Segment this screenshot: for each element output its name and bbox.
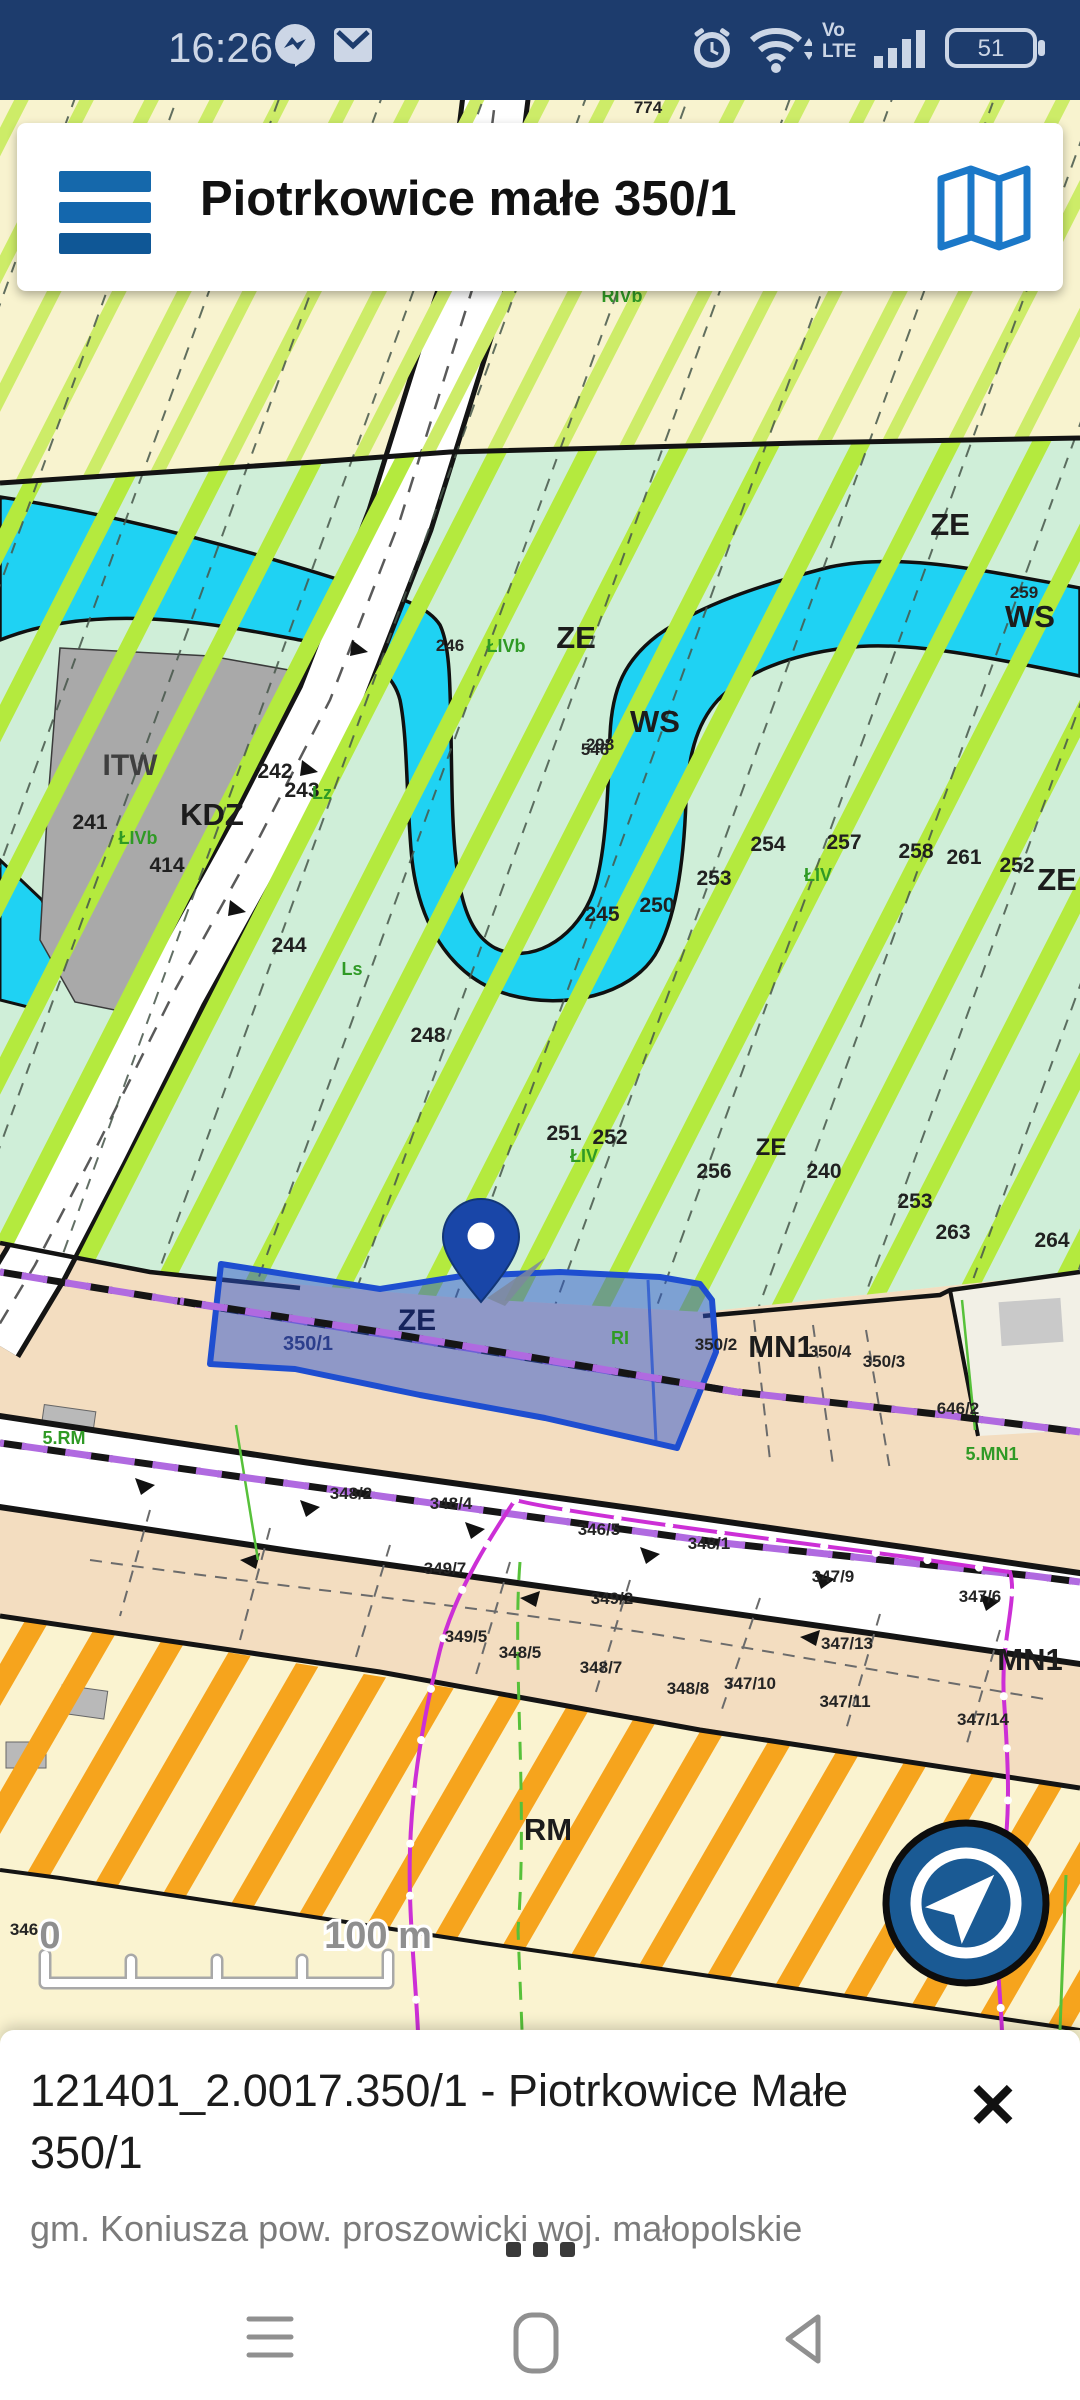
map-label: 347/9 — [812, 1567, 855, 1586]
map-label: ZE — [1037, 862, 1077, 897]
close-icon: ✕ — [967, 2072, 1019, 2141]
signal-icon — [872, 22, 934, 72]
recents-button[interactable] — [245, 2311, 295, 2367]
map-label: 264 — [1034, 1229, 1069, 1252]
map-label: RM — [524, 1812, 572, 1847]
map-label: ZE — [756, 1134, 787, 1161]
map-label: 251 — [546, 1122, 581, 1145]
map-label: 347/14 — [957, 1710, 1010, 1729]
map-label: Lz — [312, 783, 332, 803]
map-label: 244 — [271, 934, 306, 957]
search-title-card[interactable]: Piotrkowice małe 350/1 — [17, 123, 1063, 291]
clock: 16:26 — [168, 24, 273, 72]
wifi-icon — [748, 22, 812, 74]
phone-screen: 774ZEZEZEZEZEWSWSITWKDZMN1MN1RM259246298… — [0, 0, 1080, 2400]
map-label: 348/5 — [499, 1643, 542, 1662]
map-label: 774 — [634, 98, 663, 117]
map-label: ŁIVb — [119, 828, 158, 848]
map-label: MN1 — [748, 1329, 813, 1364]
map-label: 248 — [410, 1024, 445, 1047]
map-label: 259 — [1010, 583, 1038, 602]
map-label: 350/1 — [283, 1333, 333, 1355]
map-label: 347/13 — [821, 1634, 873, 1653]
map-label: WS — [1005, 599, 1055, 634]
map-label: ZE — [556, 620, 596, 655]
map-label: MN1 — [997, 1642, 1062, 1677]
map-label: 348/4 — [430, 1494, 473, 1513]
map-label: 241 — [72, 811, 107, 834]
location-pin-hole — [468, 1223, 495, 1250]
scale-zero-label: 0 — [39, 1915, 60, 1957]
gmail-icon — [330, 22, 376, 68]
ellipsis-icon — [506, 2242, 521, 2257]
map-label: 246 — [436, 636, 464, 655]
back-icon — [788, 2317, 818, 2361]
home-button[interactable] — [512, 2311, 560, 2375]
page-title: Piotrkowice małe 350/1 — [200, 171, 900, 227]
building — [999, 1298, 1064, 1346]
map-icon — [941, 169, 1027, 247]
map-label: 349/2 — [591, 1589, 634, 1608]
map-label: 348/7 — [580, 1658, 623, 1677]
map-label: Ls — [341, 959, 362, 979]
map-label: 347/10 — [724, 1674, 776, 1693]
map-label: WS — [630, 704, 680, 739]
map-label: 252 — [999, 854, 1034, 877]
close-button[interactable]: ✕ — [958, 2072, 1028, 2142]
alarm-icon — [688, 22, 736, 74]
map-label: 240 — [806, 1160, 841, 1183]
map-label: 263 — [935, 1221, 970, 1244]
map-label: ŁIVb — [487, 636, 526, 656]
map-label: 546 — [581, 740, 609, 759]
map-label: 348/1 — [688, 1534, 731, 1553]
map-label: 346/5 — [578, 1520, 621, 1539]
menu-icon — [59, 171, 151, 192]
map-label: 350/4 — [809, 1342, 852, 1361]
map-label: 5.RM — [42, 1428, 85, 1448]
more-button[interactable] — [0, 2228, 1080, 2268]
messenger-icon — [272, 22, 318, 68]
map-label: 350/2 — [695, 1335, 738, 1354]
map-label: 257 — [826, 831, 861, 854]
map-label: ZE — [930, 507, 970, 542]
back-button[interactable] — [782, 2311, 824, 2367]
map-label: 349/5 — [445, 1627, 488, 1646]
scale-hundred-label: 100 m — [324, 1915, 432, 1957]
map-label: 250 — [639, 894, 674, 917]
parcel-title: 121401_2.0017.350/1 - Piotrkowice Małe 3… — [30, 2060, 940, 2183]
map-label: ŁIV — [570, 1146, 598, 1166]
map-label: ŁIV — [804, 865, 832, 885]
map-label: ITW — [103, 749, 159, 782]
battery-icon: 51 — [944, 22, 1050, 74]
map-label: 347/11 — [819, 1692, 870, 1711]
map-label: 646/2 — [937, 1399, 980, 1418]
map-layers-button[interactable] — [931, 163, 1035, 255]
android-nav-bar — [0, 2285, 1080, 2400]
map-label: 348/8 — [667, 1679, 710, 1698]
map-label: 253 — [696, 867, 731, 890]
map-label: 258 — [898, 840, 933, 863]
map-label: 414 — [149, 854, 184, 877]
map-label: 254 — [750, 833, 785, 856]
map-label: 256 — [696, 1160, 731, 1183]
map-label: 5.MN1 — [965, 1444, 1018, 1464]
recents-icon — [249, 2319, 291, 2355]
battery-percent: 51 — [978, 35, 1005, 62]
map-label: RI — [611, 1328, 629, 1348]
menu-button[interactable] — [59, 171, 151, 255]
map-label: 253 — [897, 1190, 932, 1213]
map-canvas[interactable]: 774ZEZEZEZEZEWSWSITWKDZMN1MN1RM259246298… — [0, 0, 1080, 2030]
volte-icon: Vo LTE — [822, 20, 856, 62]
home-icon — [516, 2315, 556, 2371]
status-bar: 16:26 Vo LTE — [0, 0, 1080, 100]
map-label: KDZ — [180, 797, 244, 832]
map-label: 350/3 — [863, 1352, 906, 1371]
compass-button[interactable] — [886, 1823, 1046, 1983]
map-label: ZE — [398, 1304, 436, 1337]
map-label: 261 — [946, 846, 981, 869]
map-label: 348/2 — [330, 1484, 373, 1503]
map-label: 245 — [584, 903, 619, 926]
map-label: 349/7 — [424, 1559, 467, 1578]
map-label: 347/6 — [959, 1587, 1002, 1606]
map-label: 346 — [10, 1920, 38, 1939]
